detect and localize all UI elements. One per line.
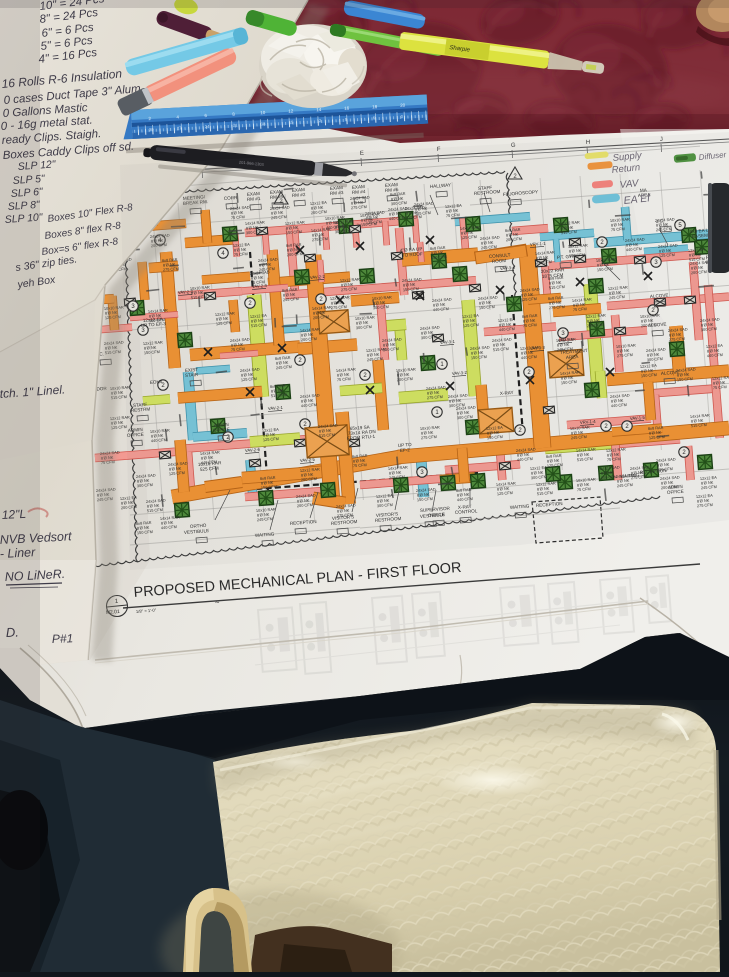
svg-text:16: 16 — [344, 106, 350, 111]
svg-text:10: 10 — [260, 110, 266, 115]
svg-text:20: 20 — [400, 103, 406, 108]
svg-text:P#1: P#1 — [52, 631, 74, 646]
svg-text:18: 18 — [372, 104, 378, 109]
svg-text:12: 12 — [288, 108, 294, 113]
